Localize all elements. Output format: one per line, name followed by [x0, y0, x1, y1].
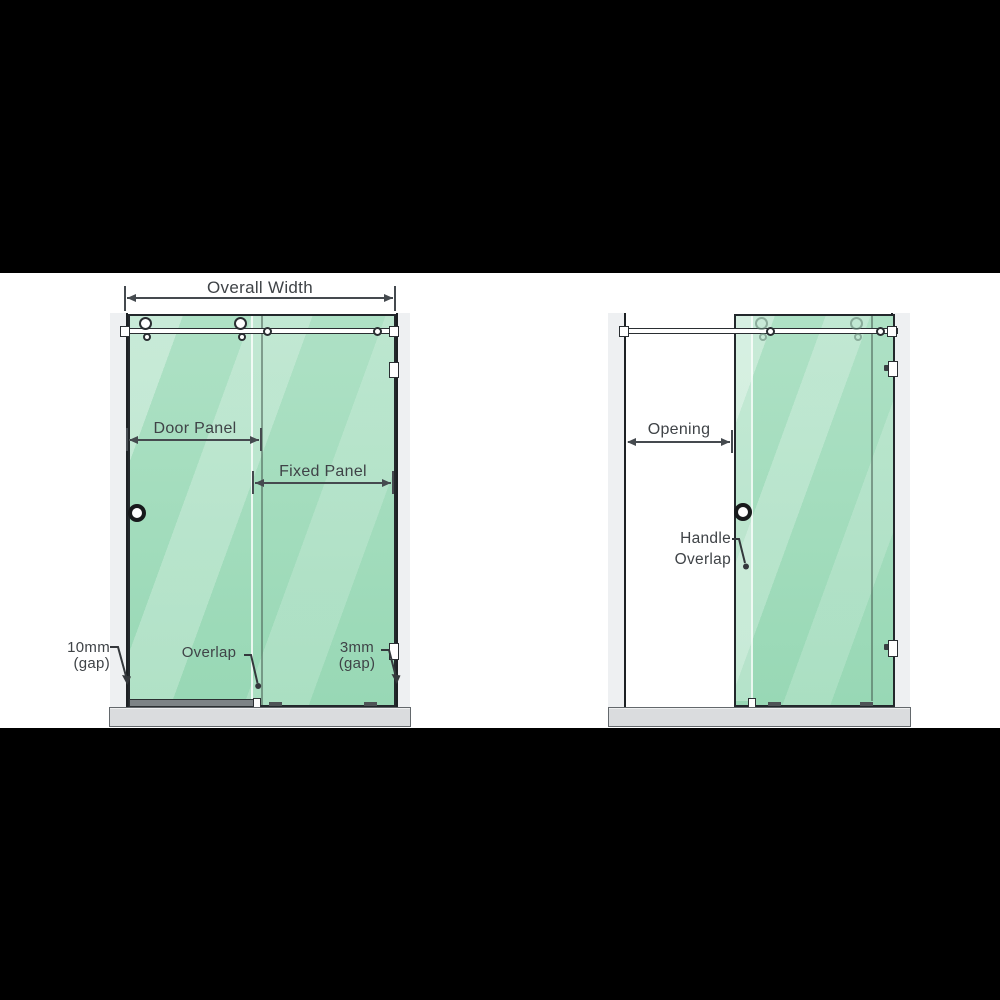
fixed-panel-dimension — [255, 482, 391, 484]
top-black-band — [0, 0, 1000, 273]
roller-icon — [234, 317, 247, 330]
bottom-black-band — [0, 728, 1000, 1000]
gap-right-unit: (gap) — [331, 656, 383, 672]
door-panel-edge-seam — [251, 316, 253, 701]
panel-clamp-icon — [364, 702, 377, 706]
dim-tick — [392, 471, 394, 494]
arrowhead-icon — [384, 294, 393, 302]
opening-label: Opening — [626, 421, 732, 438]
rail-endcap-right — [389, 326, 399, 337]
dim-tick — [731, 430, 733, 453]
roller-stop-icon — [143, 333, 151, 341]
arrowhead-icon — [255, 479, 264, 487]
panel-clamp-icon — [768, 702, 781, 706]
wall-clip-icon — [389, 362, 399, 378]
panel-clamp-icon — [269, 702, 282, 706]
overall-width-label: Overall Width — [126, 279, 394, 297]
rail-fixing-icon — [876, 327, 885, 336]
dim-tick — [260, 428, 262, 451]
wall-strip-left — [110, 313, 128, 707]
handle-overlap-line1: Handle — [662, 528, 731, 549]
wall-clip-icon — [888, 640, 898, 657]
rail-fixing-icon — [766, 327, 775, 336]
wall-clip-icon — [389, 643, 399, 660]
overlap-label: Overlap — [172, 645, 246, 661]
door-panel-edge-seam — [871, 316, 873, 701]
roller-icon — [850, 317, 863, 330]
dim-tick — [394, 286, 396, 311]
gap-left-callout: 10mm (gap) — [55, 640, 110, 672]
dim-tick — [124, 286, 126, 311]
door-panel-dimension — [129, 439, 259, 441]
rail-endcap-left — [619, 326, 629, 337]
roller-stop-icon — [238, 333, 246, 341]
overall-width-dimension — [127, 297, 393, 299]
arrowhead-icon — [382, 479, 391, 487]
handle-overlap-callout: Handle Overlap — [662, 528, 731, 570]
door-bottom-seal — [129, 699, 256, 707]
rail-endcap-right — [887, 326, 897, 337]
roller-stop-icon — [854, 333, 862, 341]
rail-fixing-icon — [263, 327, 272, 336]
door-handle-icon — [734, 503, 752, 521]
top-rail — [121, 328, 398, 334]
roller-stop-icon — [759, 333, 767, 341]
rail-fixing-icon — [373, 327, 382, 336]
rail-endcap-left — [120, 326, 130, 337]
arrowhead-icon — [250, 436, 259, 444]
gap-right-callout: 3mm (gap) — [331, 640, 383, 672]
arrowhead-icon — [627, 438, 636, 446]
opening-dimension — [628, 441, 730, 443]
dim-tick — [252, 471, 254, 494]
gap-left-value: 10mm — [55, 640, 110, 656]
gap-right-value: 3mm — [331, 640, 383, 656]
handle-overlap-line2: Overlap — [662, 549, 731, 570]
fixed-panel-label: Fixed Panel — [253, 463, 393, 480]
wall-line — [624, 313, 626, 707]
roller-icon — [139, 317, 152, 330]
dim-tick — [126, 428, 128, 451]
door-panel-label: Door Panel — [128, 420, 262, 437]
panel-clamp-icon — [860, 702, 873, 706]
wall-clip-icon — [888, 361, 898, 377]
door-handle-icon — [128, 504, 146, 522]
shower-base — [109, 707, 411, 727]
roller-icon — [755, 317, 768, 330]
fixed-panel-edge-seam — [261, 316, 263, 705]
shower-base — [608, 707, 911, 727]
arrowhead-icon — [721, 438, 730, 446]
shower-screen-dimension-diagram: { "closed_view": { "labels": { "overall_… — [0, 0, 1000, 1000]
gap-left-unit: (gap) — [55, 656, 110, 672]
arrowhead-icon — [127, 294, 136, 302]
arrowhead-icon — [129, 436, 138, 444]
